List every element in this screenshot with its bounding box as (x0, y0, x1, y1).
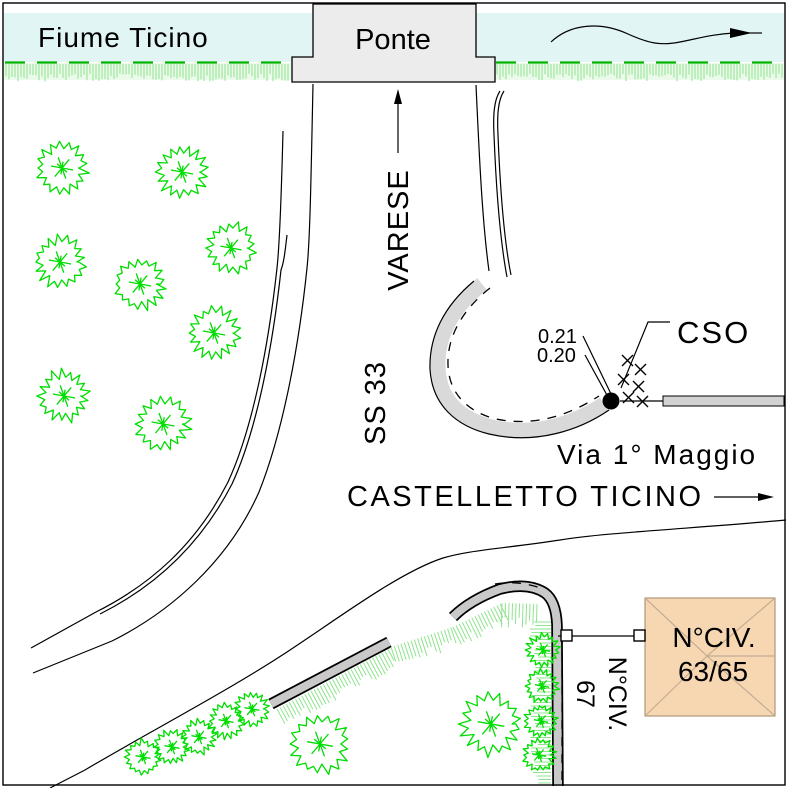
tree-icon (115, 259, 166, 310)
town-label: CASTELLETTO TICINO (347, 481, 704, 513)
adjacent-building-number: 67 (571, 680, 599, 708)
site-plan-map: Fiume Ticino Ponte VARESE SS 33 CASTELLE… (0, 0, 788, 788)
tree-icon (290, 716, 348, 775)
adjacent-building-label: N°CIV. (603, 657, 631, 731)
river-label: Fiume Ticino (38, 22, 209, 53)
gate-post-square (561, 630, 572, 641)
castelletto-direction-arrow-icon (714, 493, 774, 501)
tree-icon (189, 306, 241, 360)
x-marks-cluster (618, 355, 648, 407)
varese-sign-label: VARESE (383, 169, 415, 291)
grass-hatch (277, 603, 551, 783)
tree-icon (37, 368, 90, 423)
bush-icon (154, 730, 189, 764)
building-label-line2: 63/65 (678, 656, 748, 687)
elevation-label-2: 0.20 (537, 345, 576, 367)
vegetation-group (36, 141, 560, 775)
tree-icon (36, 234, 87, 287)
bridge-label: Ponte (355, 24, 431, 56)
gate-post-square (634, 630, 645, 641)
street-label: Via 1° Maggio (557, 439, 757, 470)
building-label-line1: N°CIV. (672, 622, 755, 653)
tree-icon (458, 692, 520, 758)
tree-icon (206, 222, 256, 274)
cso-label: CSO (677, 315, 750, 350)
boundary-wall (271, 583, 562, 786)
varese-direction-arrow-icon (394, 89, 402, 153)
gate-connection (558, 630, 645, 641)
highway-ss33-label: SS 33 (360, 361, 392, 445)
survey-point-marker (583, 322, 670, 410)
tree-icon (155, 147, 208, 199)
tree-icon (37, 141, 90, 194)
curved-road (430, 281, 609, 438)
tree-icon (135, 396, 192, 449)
